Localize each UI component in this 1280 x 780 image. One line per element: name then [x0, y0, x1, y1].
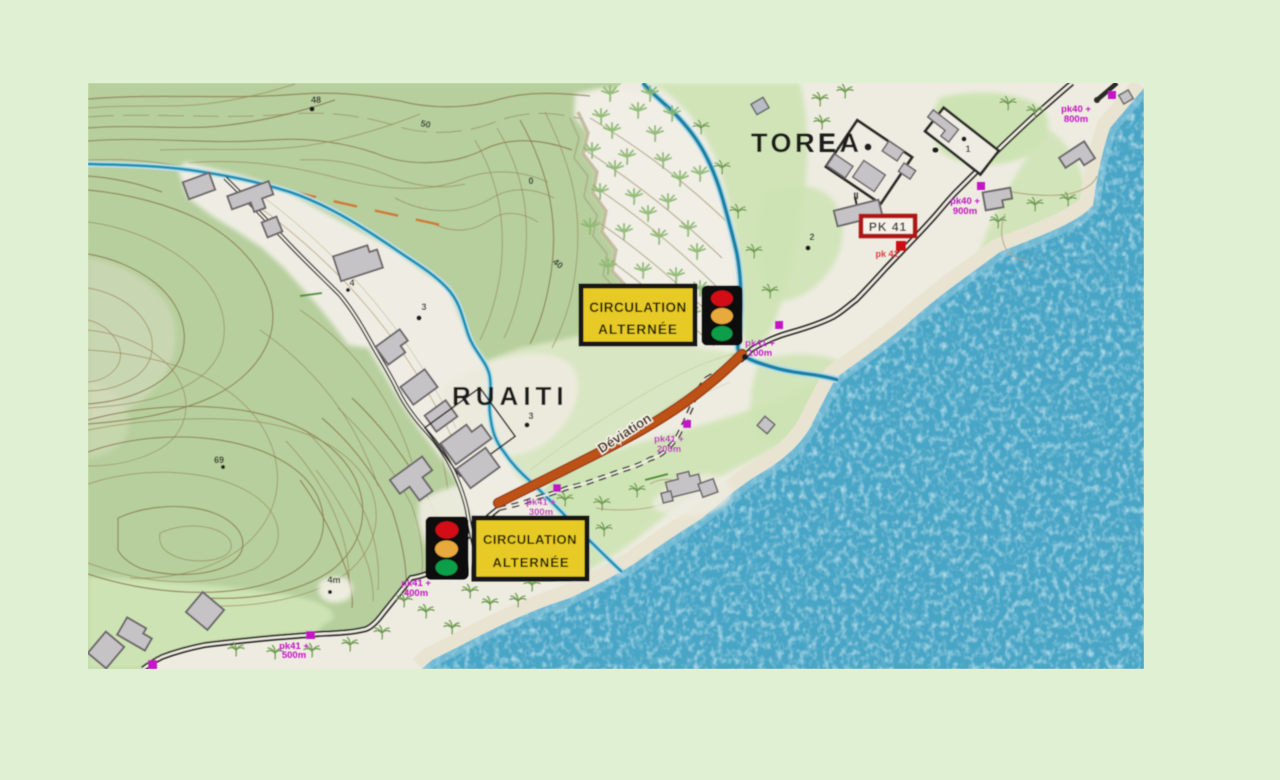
svg-text:500m: 500m: [282, 650, 306, 661]
svg-text:400m: 400m: [404, 588, 428, 599]
svg-text:1: 1: [965, 144, 970, 154]
svg-text:ALTERNÉE: ALTERNÉE: [598, 322, 678, 337]
svg-text:0: 0: [528, 176, 533, 186]
svg-text:4: 4: [349, 278, 354, 288]
svg-text:CIRCULATION: CIRCULATION: [483, 532, 577, 547]
svg-text:69: 69: [214, 455, 224, 465]
svg-text:200m: 200m: [657, 444, 681, 455]
svg-text:48: 48: [311, 95, 321, 105]
svg-text:CIRCULATION: CIRCULATION: [589, 300, 687, 315]
svg-text:50: 50: [420, 118, 432, 130]
svg-text:4m: 4m: [327, 575, 340, 585]
svg-text:ALTERNÉE: ALTERNÉE: [492, 555, 569, 570]
svg-text:TOREA: TOREA: [751, 128, 863, 158]
svg-text:RUAITI: RUAITI: [452, 381, 569, 411]
svg-text:3: 3: [528, 411, 533, 421]
svg-text:3: 3: [421, 302, 426, 312]
svg-text:2: 2: [809, 232, 814, 242]
svg-text:800m: 800m: [1064, 114, 1088, 125]
svg-text:II: II: [853, 191, 858, 201]
svg-text:100m: 100m: [748, 348, 772, 359]
svg-text:pk 41: pk 41: [875, 249, 898, 259]
svg-text:PK 41: PK 41: [869, 220, 907, 234]
svg-text:900m: 900m: [953, 206, 977, 217]
